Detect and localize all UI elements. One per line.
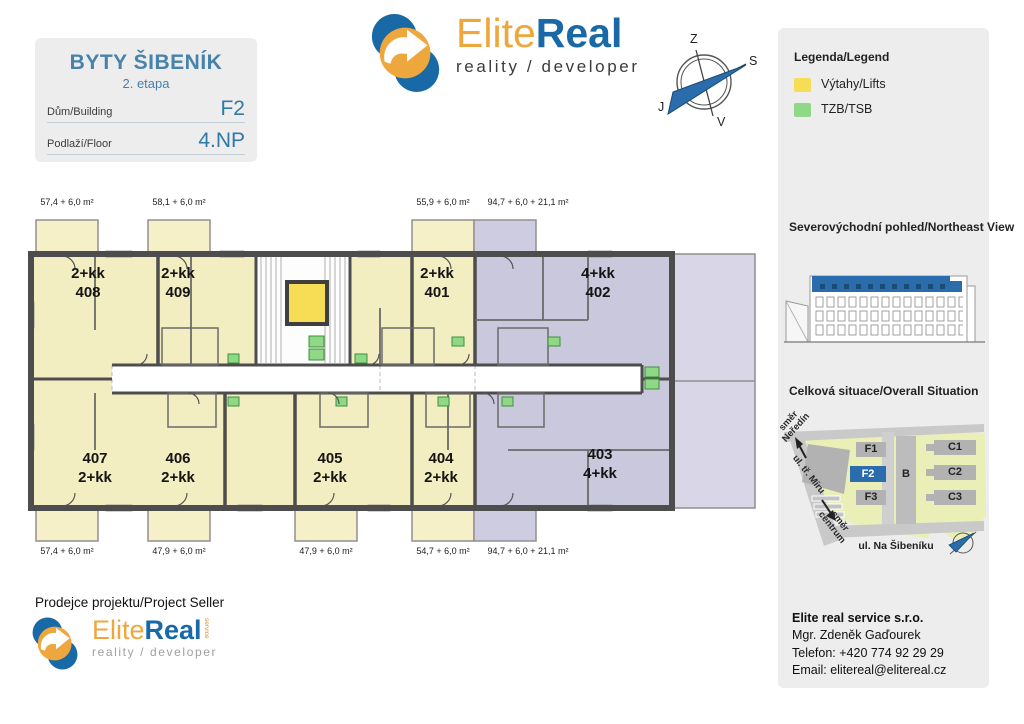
map-building-c1: C1: [948, 441, 962, 453]
project-info-box: BYTY ŠIBENÍK 2. etapa Dům/Building F2 Po…: [35, 38, 257, 162]
situation-map: F1 F2 F3 B C1 C2 C3 ul. Na Šibeníku směr…: [778, 398, 989, 562]
legend-title: Legenda/Legend: [794, 50, 889, 64]
seller-label: Prodejce projektu/Project Seller: [35, 595, 224, 610]
floor-plan: 57,4 + 6,0 m² 58,1 + 6,0 m² 55,9 + 6,0 m…: [28, 196, 758, 560]
contact-block: Elite real service s.r.o. Mgr. Zdeněk Ga…: [792, 610, 946, 679]
flyer-page: BYTY ŠIBENÍK 2. etapa Dům/Building F2 Po…: [0, 0, 1024, 724]
elitereal-logo-icon: [368, 12, 446, 99]
logo-word-elite: Elite: [456, 10, 536, 56]
apartment-405: 405 2+kk: [313, 450, 347, 488]
seller-logo-word-real: Real: [145, 615, 202, 645]
legend-swatch-tzb: [794, 103, 811, 117]
compass-icon: [656, 30, 762, 130]
area-label-408: 57,4 + 6,0 m²: [40, 197, 93, 207]
contact-phone: Telefon: +420 774 92 29 29: [792, 645, 946, 662]
building-value: F2: [220, 97, 245, 121]
area-label-402: 94,7 + 6,0 + 21,1 m²: [487, 197, 568, 207]
area-label-404: 54,7 + 6,0 m²: [416, 546, 469, 556]
map-street-na-sibeniku: ul. Na Šibeníku: [858, 540, 933, 552]
apartment-403: 403 4+kk: [583, 446, 617, 484]
apartment-401: 2+kk 401: [420, 265, 454, 303]
apartment-406: 406 2+kk: [161, 450, 195, 488]
seller-logo-text: EliteRealservice reality / developer: [92, 616, 217, 659]
elevation-drawing-icon: [782, 246, 987, 346]
project-title: BYTY ŠIBENÍK: [35, 51, 257, 75]
map-building-f2-highlighted: F2: [862, 468, 875, 480]
apartment-402: 4+kk 402: [581, 265, 615, 303]
map-building-f1: F1: [865, 443, 878, 455]
area-label-407: 57,4 + 6,0 m²: [40, 546, 93, 556]
contact-company: Elite real service s.r.o.: [792, 610, 946, 627]
area-label-401: 55,9 + 6,0 m²: [416, 197, 469, 207]
compass-east: V: [717, 115, 725, 129]
building-row: Dům/Building F2: [47, 95, 245, 123]
building-label: Dům/Building: [47, 106, 112, 121]
logo-word-real: Real: [536, 10, 623, 56]
floor-plan-drawing-icon: [28, 210, 758, 555]
area-label-409: 58,1 + 6,0 m²: [152, 197, 205, 207]
legend-swatch-lifts: [794, 78, 811, 92]
seller-logo-word-elite: Elite: [92, 615, 145, 645]
logo-tagline: reality / developer: [456, 57, 640, 77]
seller-logo-icon: [30, 616, 82, 676]
legend-label-lifts: Výtahy/Lifts: [821, 77, 886, 91]
compass-north: S: [749, 54, 757, 68]
contact-email: Email: elitereal@elitereal.cz: [792, 662, 946, 679]
apartment-408: 2+kk 408: [71, 265, 105, 303]
elitereal-logo: EliteReal reality / developer: [368, 12, 640, 99]
sidebar-panel: [778, 28, 989, 688]
northeast-elevation: [782, 246, 987, 346]
compass-west: Z: [690, 32, 698, 46]
seller-logo: EliteRealservice reality / developer: [30, 616, 217, 676]
seller-logo-word-service: service: [203, 618, 210, 639]
seller-logo-tagline: reality / developer: [92, 645, 217, 659]
compass-rose: Z S J V: [656, 30, 762, 130]
map-building-b: B: [902, 468, 910, 480]
northeast-view-title: Severovýchodní pohled/Northeast View: [789, 220, 1014, 234]
elitereal-logo-text: EliteReal reality / developer: [456, 12, 640, 77]
apartment-407: 407 2+kk: [78, 450, 112, 488]
apartment-409: 2+kk 409: [161, 265, 195, 303]
map-building-c2: C2: [948, 466, 962, 478]
floor-label: Podlaží/Floor: [47, 138, 112, 153]
floor-value: 4.NP: [198, 129, 245, 153]
area-label-406: 47,9 + 6,0 m²: [152, 546, 205, 556]
area-label-405: 47,9 + 6,0 m²: [299, 546, 352, 556]
map-building-c3: C3: [948, 491, 962, 503]
situation-title: Celková situace/Overall Situation: [789, 384, 978, 398]
compass-south: J: [658, 100, 664, 114]
area-label-403: 94,7 + 6,0 + 21,1 m²: [487, 546, 568, 556]
apartment-404: 404 2+kk: [424, 450, 458, 488]
legend-label-tzb: TZB/TSB: [821, 102, 872, 116]
floor-row: Podlaží/Floor 4.NP: [47, 127, 245, 155]
project-stage: 2. etapa: [35, 76, 257, 91]
contact-person: Mgr. Zdeněk Gaďourek: [792, 627, 946, 644]
map-building-f3: F3: [865, 491, 878, 503]
